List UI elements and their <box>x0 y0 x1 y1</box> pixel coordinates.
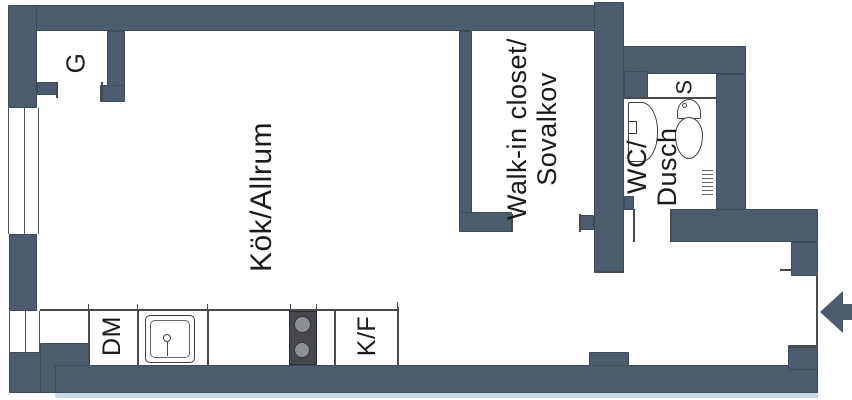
room-label-shaft: S <box>673 79 698 94</box>
wall-bottom <box>55 365 818 393</box>
room-label-wc-shower: WC/ Dusch <box>622 127 682 206</box>
wall-closet-right <box>594 2 624 273</box>
toilet-flush-button <box>682 103 687 108</box>
room-label-walk-in-closet: Walk-in closet/ Sovalkov <box>502 38 562 220</box>
counter-tick <box>316 304 317 310</box>
window-upper <box>8 108 39 234</box>
counter-divider <box>334 309 336 365</box>
wall-shaft-left-block <box>624 71 648 99</box>
wall-closet-right-notch <box>579 215 594 230</box>
counter-tick <box>290 304 291 310</box>
room-label-wc-line2: Dusch <box>652 127 682 206</box>
wall-right-of-wc <box>716 74 746 210</box>
window-lower <box>9 311 40 352</box>
wall-entry-lower-stub <box>788 345 818 370</box>
wall-bottom-stub <box>589 352 629 366</box>
room-label-wc-line1: WC/ <box>622 127 652 206</box>
room-label-kitchen-living: Kök/Allrum <box>245 122 279 272</box>
stove-burner-icon <box>294 342 310 358</box>
entry-arrow-icon <box>820 291 843 333</box>
room-label-walk-in-closet-line1: Walk-in closet/ <box>502 38 532 220</box>
wall-top <box>10 5 618 31</box>
entry-tick <box>780 269 792 271</box>
stove-burner-icon <box>294 316 311 333</box>
counter-divider <box>207 309 209 365</box>
faucet-icon <box>163 334 171 342</box>
entry-arrow-tail <box>843 304 852 320</box>
counter-tick <box>137 304 138 310</box>
kitchen-counter-front-line <box>40 309 398 311</box>
passage-tick <box>596 271 624 273</box>
counter-tick <box>397 302 398 308</box>
counter-end-line <box>397 307 399 365</box>
shaft-divider-line <box>625 97 716 99</box>
room-label-wardrobe: G <box>61 53 90 74</box>
wall-hall-top <box>670 209 818 242</box>
wardrobe-door-tick <box>56 82 58 98</box>
wc-door-tick <box>633 209 635 242</box>
floor-plan: G Kök/Allrum Walk-in closet/ Sovalkov WC… <box>0 0 852 400</box>
wall-entry-upper <box>791 242 818 276</box>
wall-left-mid <box>9 234 37 311</box>
wall-top-right <box>618 46 746 74</box>
window-pane-line <box>25 311 26 352</box>
counter-tick <box>207 304 208 310</box>
stove <box>289 311 317 365</box>
wall-closet-left <box>459 31 472 214</box>
wall-wardrobe-right-foot <box>100 85 125 102</box>
counter-divider <box>137 309 139 365</box>
window-pane-line <box>24 108 25 234</box>
wc-door-tick <box>670 209 672 242</box>
wall-wardrobe-left-stub <box>37 82 57 95</box>
wall-left-upper <box>8 5 37 108</box>
faucet-stem <box>167 342 169 356</box>
counter-tick <box>88 304 89 310</box>
wardrobe-door-tick <box>101 82 103 102</box>
entry-threshold-line <box>816 276 818 345</box>
toilet-tank <box>677 99 701 119</box>
wall-wardrobe-right <box>107 31 125 87</box>
bottom-edge-strip <box>55 393 818 398</box>
unit-label-fridge-freezer: K/F <box>353 316 381 356</box>
counter-divider <box>88 309 90 365</box>
tiny-annotation-scribble <box>702 170 713 196</box>
unit-label-dishwasher: DM <box>98 316 126 356</box>
closet-door-tick <box>579 214 581 232</box>
entry-tick <box>789 346 817 348</box>
room-label-walk-in-closet-line2: Sovalkov <box>532 38 562 220</box>
